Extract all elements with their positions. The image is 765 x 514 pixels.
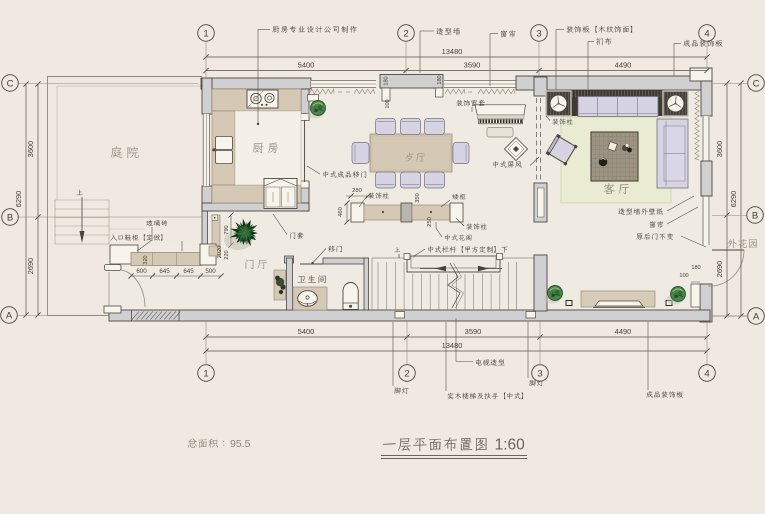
svg-text:5400: 5400: [298, 61, 315, 70]
svg-text:645: 645: [159, 268, 170, 275]
svg-text:1: 1: [203, 368, 208, 379]
svg-text:3: 3: [537, 368, 542, 379]
svg-text:500: 500: [205, 268, 216, 275]
svg-text:3590: 3590: [464, 61, 481, 70]
svg-text:3600: 3600: [26, 141, 35, 158]
svg-text:95.5: 95.5: [230, 438, 251, 450]
svg-text:2690: 2690: [26, 258, 35, 275]
svg-text:1:60: 1:60: [495, 437, 526, 454]
svg-text:4: 4: [704, 28, 709, 39]
svg-text:2: 2: [403, 28, 408, 39]
svg-text:280: 280: [352, 188, 362, 194]
svg-text:2020: 2020: [217, 246, 223, 258]
svg-text:4490: 4490: [615, 327, 632, 336]
svg-text:C: C: [7, 78, 14, 89]
svg-text:790: 790: [224, 225, 230, 234]
svg-text:100: 100: [679, 273, 688, 279]
svg-text:250: 250: [427, 217, 433, 227]
svg-text:4: 4: [704, 368, 709, 379]
svg-text:645: 645: [183, 268, 194, 275]
svg-text:6290: 6290: [14, 191, 23, 208]
svg-text:A: A: [753, 311, 760, 322]
svg-text:220: 220: [224, 250, 230, 259]
svg-text:3600: 3600: [715, 141, 724, 158]
svg-text:5400: 5400: [298, 327, 315, 336]
svg-text:2690: 2690: [715, 261, 724, 278]
svg-text:3590: 3590: [465, 327, 482, 336]
svg-text:2: 2: [404, 368, 409, 379]
svg-text:13480: 13480: [442, 341, 463, 350]
svg-text:A: A: [6, 310, 13, 321]
svg-text:460: 460: [338, 207, 344, 217]
svg-text:100: 100: [385, 99, 391, 108]
svg-text:3: 3: [536, 28, 541, 39]
svg-text:350: 350: [415, 193, 421, 203]
svg-text:13480: 13480: [442, 47, 463, 56]
svg-text:600: 600: [136, 268, 147, 275]
svg-text:180: 180: [384, 76, 390, 85]
svg-text:B: B: [752, 210, 758, 221]
svg-text:180: 180: [437, 75, 443, 84]
svg-text:4490: 4490: [615, 61, 632, 70]
svg-text:1: 1: [203, 28, 208, 39]
svg-text:C: C: [753, 78, 760, 89]
svg-text:180: 180: [691, 265, 700, 271]
svg-text:B: B: [7, 212, 13, 223]
svg-text:320: 320: [143, 255, 149, 264]
svg-text:6290: 6290: [729, 191, 738, 208]
